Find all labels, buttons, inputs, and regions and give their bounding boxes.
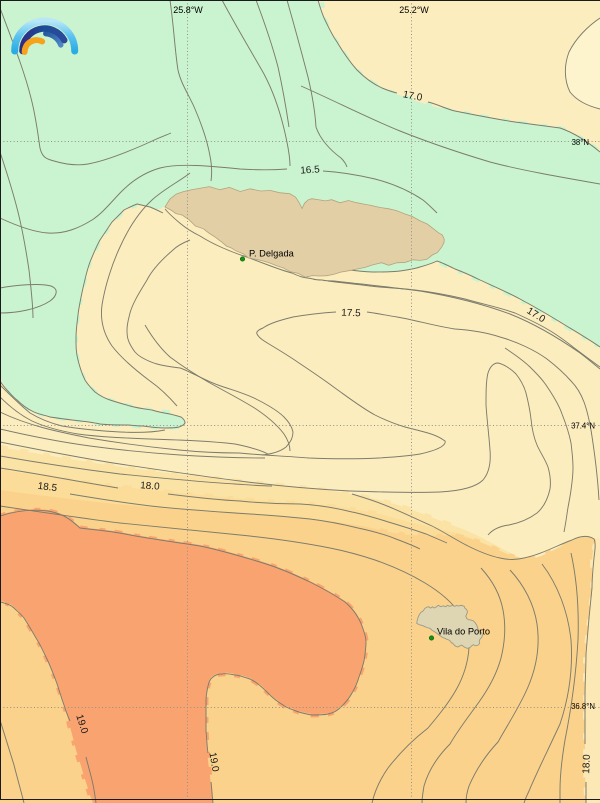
svg-text:37.4°N: 37.4°N [571, 422, 595, 431]
svg-text:38°N: 38°N [572, 138, 589, 147]
svg-text:16.5: 16.5 [300, 164, 321, 176]
svg-text:36.8°N: 36.8°N [571, 702, 595, 711]
svg-text:25.2°W: 25.2°W [399, 5, 429, 15]
svg-text:25.8°W: 25.8°W [173, 5, 203, 15]
svg-text:18.0: 18.0 [581, 754, 593, 774]
svg-text:18.0: 18.0 [140, 480, 161, 492]
svg-text:17.5: 17.5 [341, 308, 361, 320]
svg-text:P. Delgada: P. Delgada [249, 249, 295, 259]
svg-text:Vila do Porto: Vila do Porto [437, 627, 490, 637]
